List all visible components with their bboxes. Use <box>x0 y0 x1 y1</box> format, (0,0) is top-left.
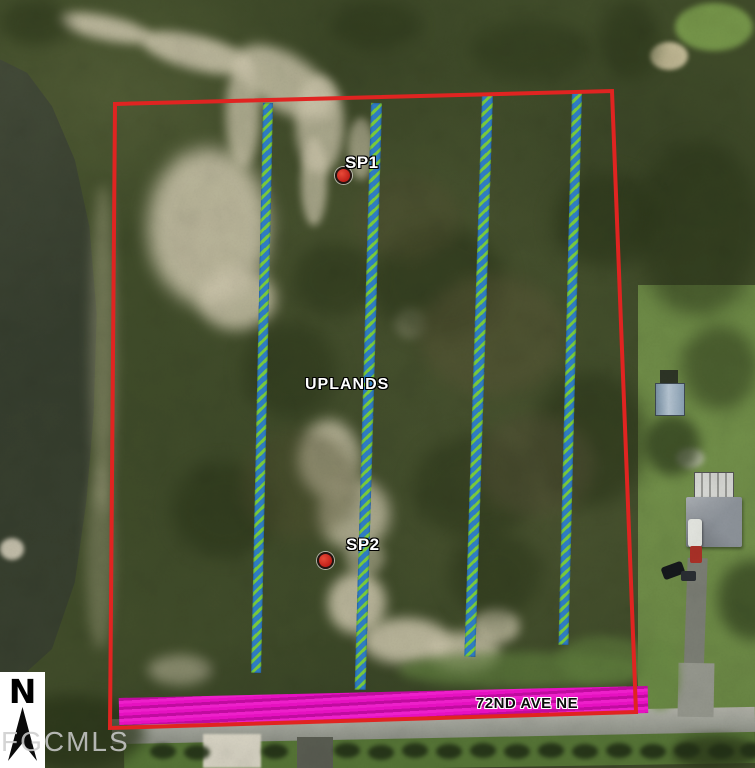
terrain-patch <box>57 6 155 49</box>
aerial-map: SP1 SP2 UPLANDS 72ND AVE NE N FGCMLS <box>0 0 755 768</box>
terrain-patch <box>86 465 114 650</box>
trailer-structure <box>694 472 734 498</box>
terrain-patch <box>675 3 753 51</box>
parked-car-gray <box>681 571 696 581</box>
terrain-patch <box>224 30 346 135</box>
terrain-patch <box>650 42 688 70</box>
dark-driveway <box>297 737 333 768</box>
terrain-patch <box>226 60 260 168</box>
north-label: N <box>0 675 45 708</box>
terrain-patch <box>420 275 565 395</box>
transect-line-4 <box>558 91 582 645</box>
terrain-patch <box>472 608 520 644</box>
terrain-patch <box>292 242 377 317</box>
area-label-uplands: UPLANDS <box>305 376 389 394</box>
terrain-patch <box>362 618 450 664</box>
terrain-patch <box>301 138 327 226</box>
transect-line-1 <box>251 103 273 673</box>
red-truck <box>690 546 702 563</box>
terrain-patch <box>470 20 590 80</box>
terrain-patch <box>296 76 344 174</box>
terrain-patch <box>556 636 651 684</box>
transect-line-2 <box>355 103 382 690</box>
shed-building <box>655 383 685 416</box>
terrain-patch <box>395 308 427 338</box>
terrain-patch <box>148 148 270 306</box>
lake <box>0 46 104 716</box>
white-driveway <box>203 734 261 768</box>
driveway-apron <box>678 663 715 718</box>
sample-point-label-sp1: SP1 <box>345 153 379 173</box>
sample-point-label-sp2: SP2 <box>346 535 380 555</box>
shed-annex <box>660 370 678 383</box>
terrain-patch <box>600 0 660 80</box>
terrain-patch <box>298 420 360 498</box>
road-label-72nd-ave: 72ND AVE NE <box>462 695 592 712</box>
terrain-patch <box>475 415 595 515</box>
terrain-patch <box>138 23 258 84</box>
terrain-patch <box>532 372 647 507</box>
sample-point-marker-sp2 <box>317 552 334 569</box>
terrain-patch <box>398 652 653 688</box>
terrain-patch <box>148 655 212 685</box>
watermark-fgcmls: FGCMLS <box>1 726 130 758</box>
terrain-patch <box>330 0 420 50</box>
rv-vehicle <box>688 519 702 547</box>
terrain-patch <box>448 532 543 617</box>
terrain-patch <box>0 0 70 46</box>
transect-line-3 <box>464 94 493 657</box>
